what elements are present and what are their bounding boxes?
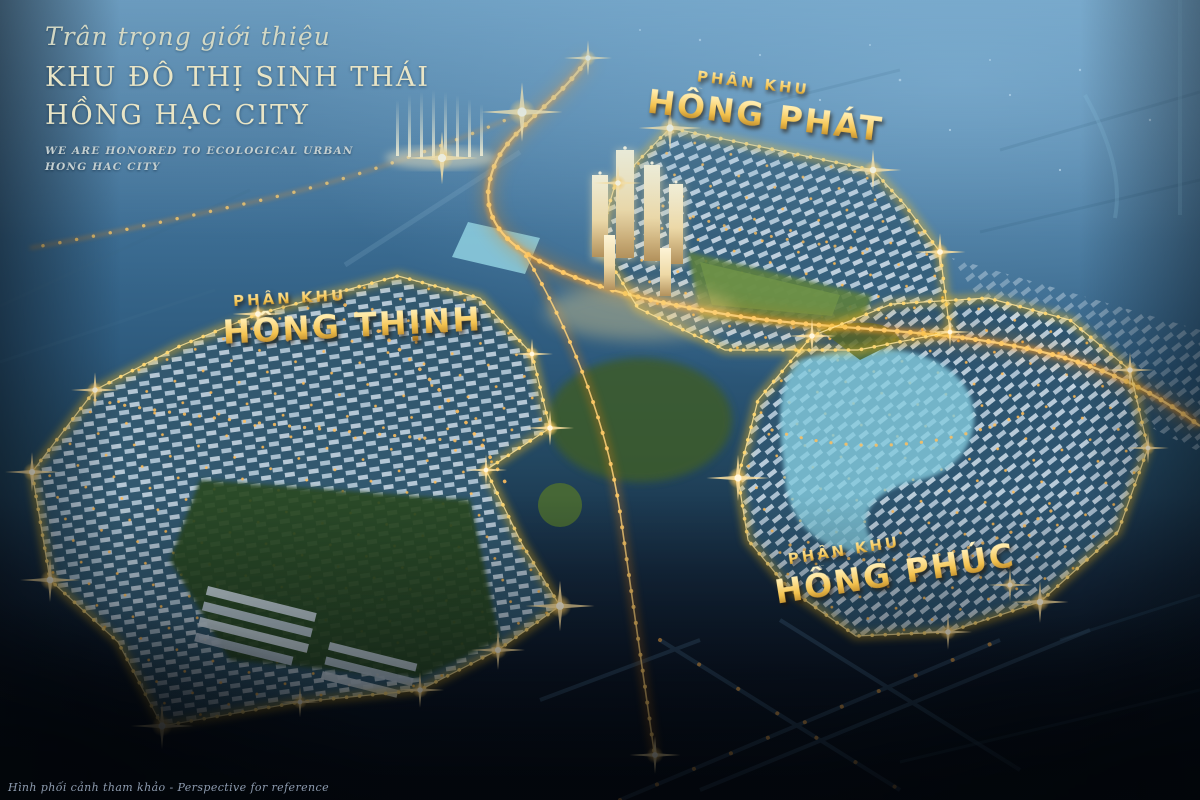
marketing-poster: Trân trọng giới thiệu KHU ĐÔ THỊ SINH TH…	[0, 0, 1200, 800]
project-subtitle-line2: HONG HAC CITY	[45, 159, 430, 175]
project-title-line1: KHU ĐÔ THỊ SINH THÁI	[45, 59, 430, 97]
central-park	[548, 358, 732, 482]
reference-note: Hình phối cảnh tham khảo - Perspective f…	[8, 781, 329, 794]
intro-tagline: Trân trọng giới thiệu	[45, 22, 430, 51]
spiral-garden	[538, 483, 582, 527]
project-subtitle-line1: WE ARE HONORED TO ECOLOGICAL URBAN	[45, 143, 430, 159]
title-block: Trân trọng giới thiệu KHU ĐÔ THỊ SINH TH…	[45, 22, 430, 175]
rural-road-grid	[540, 620, 1090, 800]
project-title-line2: HỒNG HẠC CITY	[45, 97, 430, 135]
